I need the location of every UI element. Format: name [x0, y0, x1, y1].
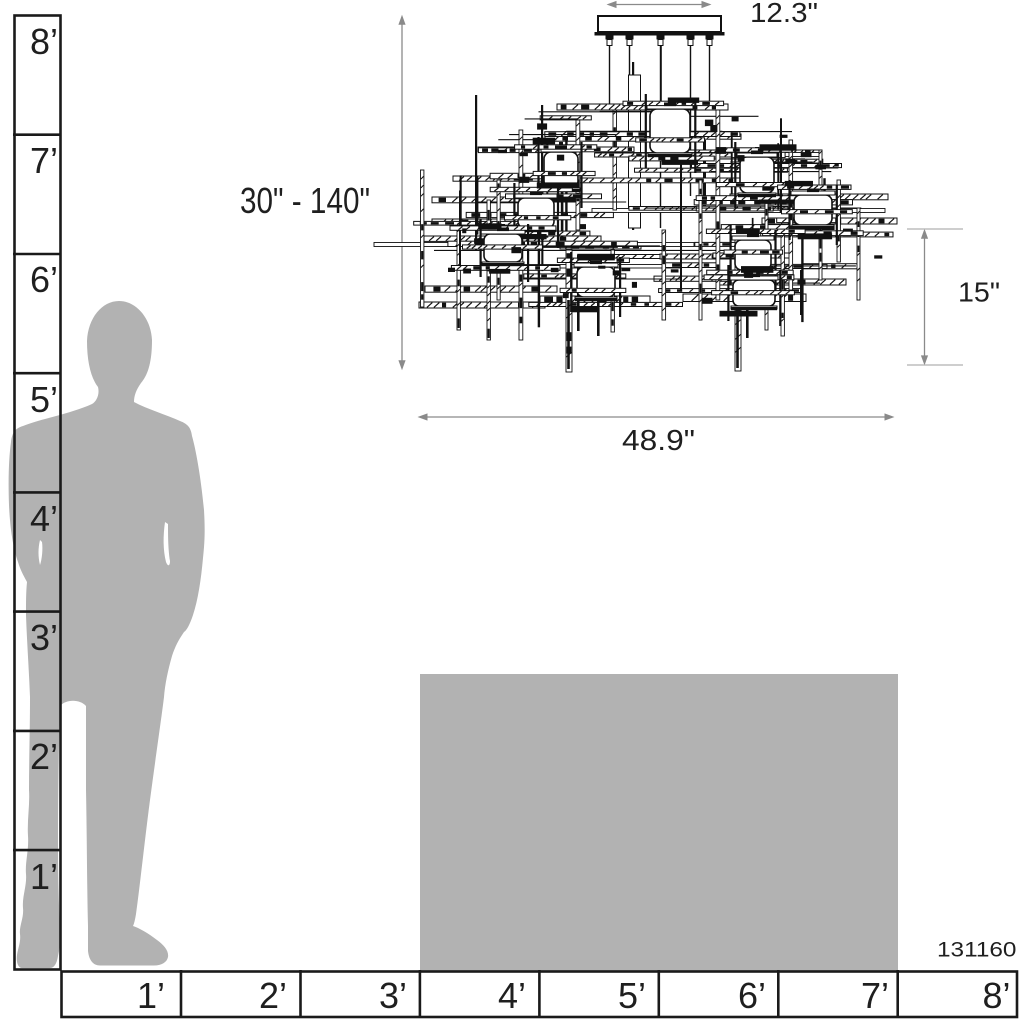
svg-text:5’: 5’ [618, 975, 646, 1016]
svg-text:4’: 4’ [498, 975, 526, 1016]
svg-text:48.9": 48.9" [622, 425, 695, 457]
svg-text:7’: 7’ [30, 140, 58, 181]
svg-text:12.3": 12.3" [750, 0, 818, 28]
svg-text:131160: 131160 [937, 939, 1017, 962]
svg-text:30" - 140": 30" - 140" [240, 180, 370, 221]
svg-text:7’: 7’ [861, 975, 889, 1016]
svg-text:3’: 3’ [379, 975, 407, 1016]
svg-text:3’: 3’ [30, 617, 58, 658]
svg-text:8’: 8’ [30, 21, 58, 62]
svg-text:4’: 4’ [30, 498, 58, 539]
svg-text:1’: 1’ [137, 975, 165, 1016]
svg-text:2’: 2’ [259, 975, 287, 1016]
svg-text:6’: 6’ [738, 975, 766, 1016]
svg-text:8’: 8’ [982, 975, 1010, 1016]
svg-text:1’: 1’ [30, 856, 58, 897]
svg-text:5’: 5’ [30, 379, 58, 420]
svg-text:2’: 2’ [30, 736, 58, 777]
svg-text:6’: 6’ [30, 259, 58, 300]
svg-text:15": 15" [958, 277, 1000, 308]
